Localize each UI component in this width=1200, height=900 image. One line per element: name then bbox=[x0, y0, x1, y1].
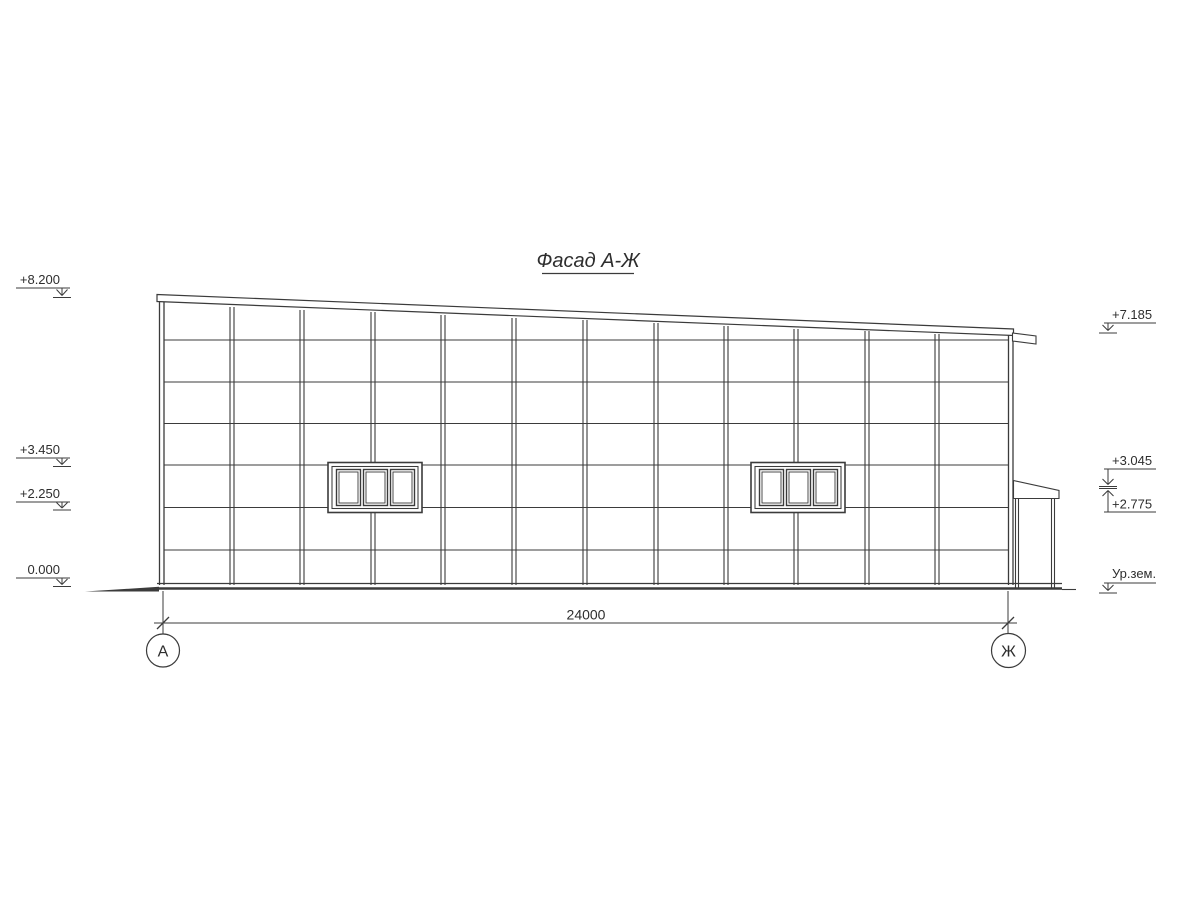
roof-beam-end bbox=[1013, 333, 1037, 344]
axis-marker-zh: Ж bbox=[992, 634, 1026, 668]
annex bbox=[1014, 481, 1060, 589]
annex-walls bbox=[1016, 499, 1055, 589]
axis-label-a: А bbox=[158, 644, 169, 661]
elevation-mark-left-3450: +3.450 bbox=[16, 442, 71, 467]
elevation-symbol bbox=[16, 288, 71, 298]
annex-roof-hatched bbox=[1014, 481, 1060, 499]
elevation-value: +3.450 bbox=[20, 442, 60, 457]
elevation-mark-left-2250: +2.250 bbox=[16, 486, 71, 510]
ground-wedge-left bbox=[85, 587, 159, 592]
elevation-mark-right-3045: +3.045 bbox=[1099, 453, 1156, 487]
elevation-mark-right-7185: +7.185 bbox=[1099, 307, 1156, 333]
drawing-title: Фасад А-Ж bbox=[536, 250, 641, 272]
facade-elevation-drawing: Фасад А-Ж bbox=[0, 0, 1200, 900]
dimension-text: 24000 bbox=[567, 607, 606, 623]
left-corner-post bbox=[160, 296, 165, 585]
elevation-value: Ур.зем. bbox=[1112, 566, 1156, 581]
axis-marker-a: А bbox=[147, 634, 180, 667]
facade-wall bbox=[157, 295, 1036, 586]
elevation-symbol bbox=[1099, 469, 1156, 487]
vertical-mullions bbox=[230, 307, 939, 585]
elevation-symbol bbox=[16, 458, 71, 467]
elevation-value: +7.185 bbox=[1112, 307, 1152, 322]
elevation-value: +2.775 bbox=[1112, 497, 1152, 512]
elevation-symbol bbox=[16, 502, 71, 510]
window-left bbox=[328, 463, 422, 513]
right-corner-post bbox=[1009, 330, 1014, 585]
elevation-symbol bbox=[1099, 583, 1156, 593]
elevation-value: 0.000 bbox=[27, 562, 60, 577]
elevation-mark-right-2775: +2.775 bbox=[1099, 489, 1156, 513]
elevation-mark-left-8200: +8.200 bbox=[16, 272, 71, 298]
elevation-symbol bbox=[16, 578, 71, 587]
elevation-value: +3.045 bbox=[1112, 453, 1152, 468]
elevation-value: +2.250 bbox=[20, 486, 60, 501]
dimension-line-group: 24000 bbox=[154, 591, 1017, 634]
window-right bbox=[751, 463, 845, 513]
elevation-value: +8.200 bbox=[20, 272, 60, 287]
horizontal-joints bbox=[164, 340, 1008, 550]
drawing-sheet: Фасад А-Ж bbox=[0, 0, 1200, 900]
elevation-mark-left-0000: 0.000 bbox=[16, 562, 71, 587]
axis-label-zh: Ж bbox=[1001, 644, 1016, 661]
roof-fascia bbox=[157, 295, 1014, 336]
elevation-symbol bbox=[1099, 323, 1156, 333]
elevation-mark-right-ground: Ур.зем. bbox=[1099, 566, 1156, 593]
